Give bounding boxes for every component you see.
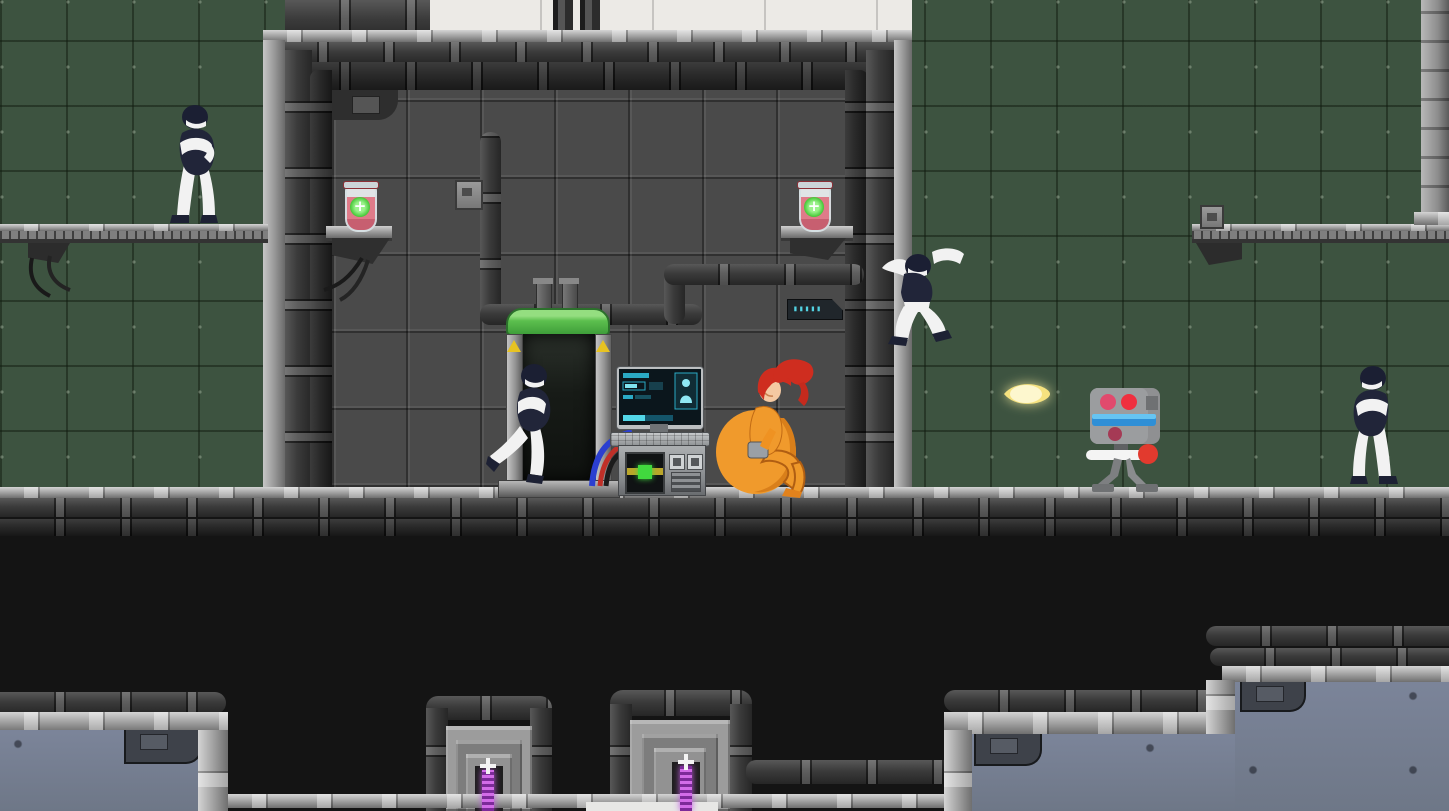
room-left-column: [263, 40, 285, 497]
room-border-pipe: [285, 50, 312, 497]
left-platform-track: [0, 231, 268, 239]
pit-pipe: [1210, 648, 1449, 666]
pit-rail-vertical: [198, 730, 228, 811]
left-platform-lip: [0, 239, 268, 243]
energy-beam: [482, 770, 494, 811]
slate-bracket: [974, 734, 1042, 766]
pipe-valve-box: [455, 180, 483, 210]
wall-sign-text: ▮▮▮▮▮: [793, 304, 822, 313]
main-floor-pipe: [0, 519, 1449, 536]
slate-bracket: [124, 730, 202, 764]
terminal-cabinet: [618, 445, 706, 496]
pit-rail-vertical: [1206, 680, 1235, 734]
terminal-monitor: [616, 366, 704, 430]
right-platform-lip: [1192, 239, 1449, 243]
warning-triangle-icon: [596, 340, 610, 352]
energy-beam: [680, 766, 692, 811]
room-border-pipe: [263, 42, 912, 64]
right-platform-track: [1192, 231, 1449, 239]
beam-cross-icon: [480, 758, 496, 774]
white-wall-panels: [430, 0, 912, 34]
hanging-wires: [20, 254, 90, 304]
pit-pipe: [1206, 626, 1449, 646]
health-cross-icon: +: [804, 197, 824, 217]
pit-pipe: [944, 690, 1206, 712]
energy-bolt-projectile: [1000, 378, 1052, 410]
pit-rail-vertical: [944, 730, 972, 811]
android-leaping[interactable]: [874, 244, 970, 348]
pit-rail: [1222, 666, 1449, 682]
slate-bracket: [1240, 682, 1306, 712]
pit-pipe: [746, 760, 958, 784]
beam-cross-icon: [678, 754, 694, 770]
cabinet-vent: [671, 472, 701, 492]
room-ceiling-bracket-plate: [352, 96, 380, 114]
terminal-screen: [619, 369, 701, 425]
pit-rail: [944, 712, 1235, 734]
health-vial[interactable]: +: [345, 184, 377, 232]
right-pillar-cap: [1414, 212, 1449, 225]
pit-pipe: [0, 692, 226, 714]
game-scene: ▮▮▮▮▮: [0, 0, 1449, 811]
lab-pipe: [664, 264, 864, 285]
android-exiting-pod[interactable]: [486, 356, 578, 488]
right-wall-pillar: [1421, 0, 1449, 214]
android-guard-right[interactable]: [1336, 364, 1410, 488]
player-character[interactable]: [714, 356, 818, 498]
cabinet-button[interactable]: [669, 454, 685, 470]
room-border-pipe: [285, 62, 895, 92]
android-guard-left[interactable]: [158, 103, 232, 227]
warning-triangle-icon: [507, 340, 521, 352]
pit-white-strip: [586, 802, 718, 811]
health-cross-icon: +: [350, 197, 370, 217]
lab-terminal[interactable]: [584, 366, 710, 494]
pit-rail: [0, 712, 228, 732]
pod-dome: [506, 308, 610, 336]
sentry-robot[interactable]: [1084, 386, 1172, 492]
health-vial[interactable]: +: [799, 184, 831, 232]
main-floor-pipe: [0, 498, 1449, 517]
platform-junction-box: [1200, 205, 1224, 229]
cabinet-button[interactable]: [687, 454, 703, 470]
right-platform: [1192, 224, 1449, 231]
pod-stub-cap: [559, 278, 579, 284]
pod-stub-cap: [533, 278, 553, 284]
room-top-rail: [263, 30, 912, 42]
wall-sign: ▮▮▮▮▮: [787, 299, 843, 320]
cabinet-screen-core: [638, 465, 652, 479]
ledge-wires: [322, 252, 396, 306]
cabinet-screen: [625, 452, 665, 494]
